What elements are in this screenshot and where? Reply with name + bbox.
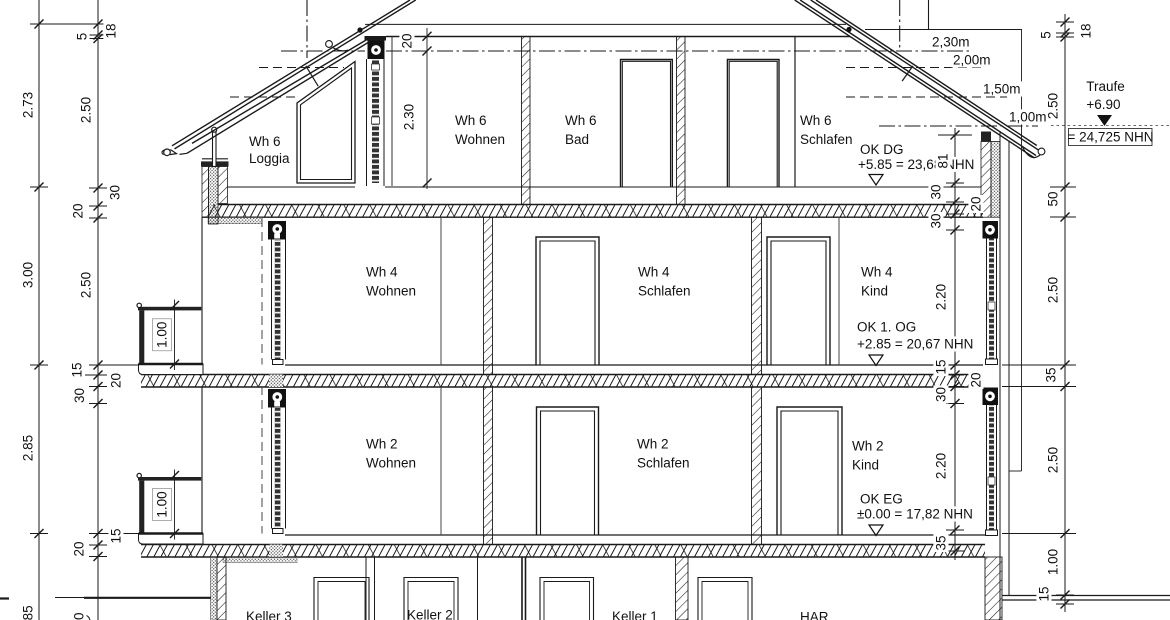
svg-text:Wh 2: Wh 2 bbox=[637, 437, 669, 452]
svg-text:2.50: 2.50 bbox=[1046, 277, 1061, 303]
svg-text:1.00: 1.00 bbox=[155, 491, 170, 517]
svg-text:+2.85 = 20,67 NHN: +2.85 = 20,67 NHN bbox=[857, 337, 973, 352]
svg-text:3.00: 3.00 bbox=[21, 262, 36, 288]
svg-text:15: 15 bbox=[70, 362, 85, 377]
svg-text:2.50: 2.50 bbox=[79, 272, 94, 298]
svg-text:Wh 6: Wh 6 bbox=[455, 113, 487, 128]
svg-text:±0.00 = 17,82 NHN: ±0.00 = 17,82 NHN bbox=[857, 507, 973, 522]
svg-text:2.20: 2.20 bbox=[934, 453, 949, 479]
svg-text:30: 30 bbox=[929, 184, 944, 199]
svg-text:1,50m: 1,50m bbox=[983, 82, 1021, 97]
svg-text:Wh 6: Wh 6 bbox=[565, 113, 597, 128]
svg-text:15: 15 bbox=[109, 528, 124, 543]
svg-text:Wh 2: Wh 2 bbox=[366, 437, 398, 452]
svg-text:30: 30 bbox=[934, 387, 949, 402]
svg-text:Schlafen: Schlafen bbox=[637, 456, 690, 471]
svg-text:20: 20 bbox=[72, 541, 87, 556]
svg-text:Bad: Bad bbox=[565, 132, 589, 147]
svg-text:5: 5 bbox=[1039, 31, 1054, 39]
svg-text:= 24,725 NHN: = 24,725 NHN bbox=[1068, 130, 1154, 145]
svg-text:2.30: 2.30 bbox=[402, 104, 417, 130]
svg-text:2.85: 2.85 bbox=[21, 435, 36, 461]
svg-text:Kind: Kind bbox=[852, 458, 879, 473]
svg-text:Wh 4: Wh 4 bbox=[366, 265, 398, 280]
svg-text:HAR: HAR bbox=[800, 610, 829, 620]
svg-text:+6.90: +6.90 bbox=[1086, 97, 1120, 112]
svg-text:Wh 4: Wh 4 bbox=[638, 265, 670, 280]
svg-text:2,00m: 2,00m bbox=[953, 53, 991, 68]
svg-text:20: 20 bbox=[71, 203, 86, 218]
svg-text:Wh 6: Wh 6 bbox=[800, 113, 832, 128]
svg-text:81: 81 bbox=[936, 153, 951, 168]
svg-text:35: 35 bbox=[1044, 367, 1059, 382]
svg-text:2.20: 2.20 bbox=[934, 284, 949, 310]
svg-text:20: 20 bbox=[400, 33, 415, 48]
svg-text:+5.85 = 23,68 NHN: +5.85 = 23,68 NHN bbox=[858, 157, 974, 172]
svg-text:Wohnen: Wohnen bbox=[366, 284, 416, 299]
svg-text:18: 18 bbox=[1079, 23, 1094, 38]
svg-text:20: 20 bbox=[969, 196, 984, 211]
svg-text:35: 35 bbox=[934, 535, 949, 550]
svg-text:1.00: 1.00 bbox=[1046, 549, 1061, 575]
svg-text:Wh 6: Wh 6 bbox=[249, 134, 281, 149]
svg-text:Loggia: Loggia bbox=[249, 151, 290, 166]
svg-text:2,30m: 2,30m bbox=[932, 35, 970, 50]
svg-text:Schlafen: Schlafen bbox=[800, 132, 853, 147]
svg-text:30: 30 bbox=[108, 185, 123, 200]
svg-text:Keller 3: Keller 3 bbox=[246, 609, 292, 620]
svg-text:OK 1. OG: OK 1. OG bbox=[857, 320, 916, 335]
svg-text:Wh 4: Wh 4 bbox=[861, 265, 893, 280]
svg-text:18: 18 bbox=[104, 23, 119, 38]
svg-text:1.00: 1.00 bbox=[155, 322, 170, 348]
svg-text:5: 5 bbox=[75, 33, 90, 41]
svg-text:30: 30 bbox=[72, 612, 87, 620]
svg-text:Keller 2: Keller 2 bbox=[407, 608, 453, 620]
svg-text:30: 30 bbox=[72, 388, 87, 403]
svg-text:Wh 2: Wh 2 bbox=[852, 439, 884, 454]
svg-text:2.73: 2.73 bbox=[21, 92, 36, 118]
svg-text:50: 50 bbox=[1046, 191, 1061, 206]
svg-text:Wohnen: Wohnen bbox=[366, 456, 416, 471]
svg-text:OK EG: OK EG bbox=[860, 492, 903, 507]
svg-text:Schlafen: Schlafen bbox=[638, 284, 691, 299]
svg-text:15: 15 bbox=[1037, 586, 1052, 601]
svg-text:20: 20 bbox=[969, 372, 984, 387]
svg-text:OK DG: OK DG bbox=[860, 142, 904, 157]
svg-text:20: 20 bbox=[109, 373, 124, 388]
svg-text:Traufe: Traufe bbox=[1086, 79, 1125, 94]
svg-text:15: 15 bbox=[934, 359, 949, 374]
svg-text:2.85: 2.85 bbox=[21, 605, 36, 620]
svg-text:Wohnen: Wohnen bbox=[455, 132, 505, 147]
svg-text:Kind: Kind bbox=[861, 284, 888, 299]
svg-text:2.50: 2.50 bbox=[79, 97, 94, 123]
svg-text:1,00m: 1,00m bbox=[1009, 110, 1047, 125]
svg-text:2.50: 2.50 bbox=[1046, 447, 1061, 473]
svg-text:Keller 1: Keller 1 bbox=[612, 609, 658, 620]
svg-text:30: 30 bbox=[929, 213, 944, 228]
